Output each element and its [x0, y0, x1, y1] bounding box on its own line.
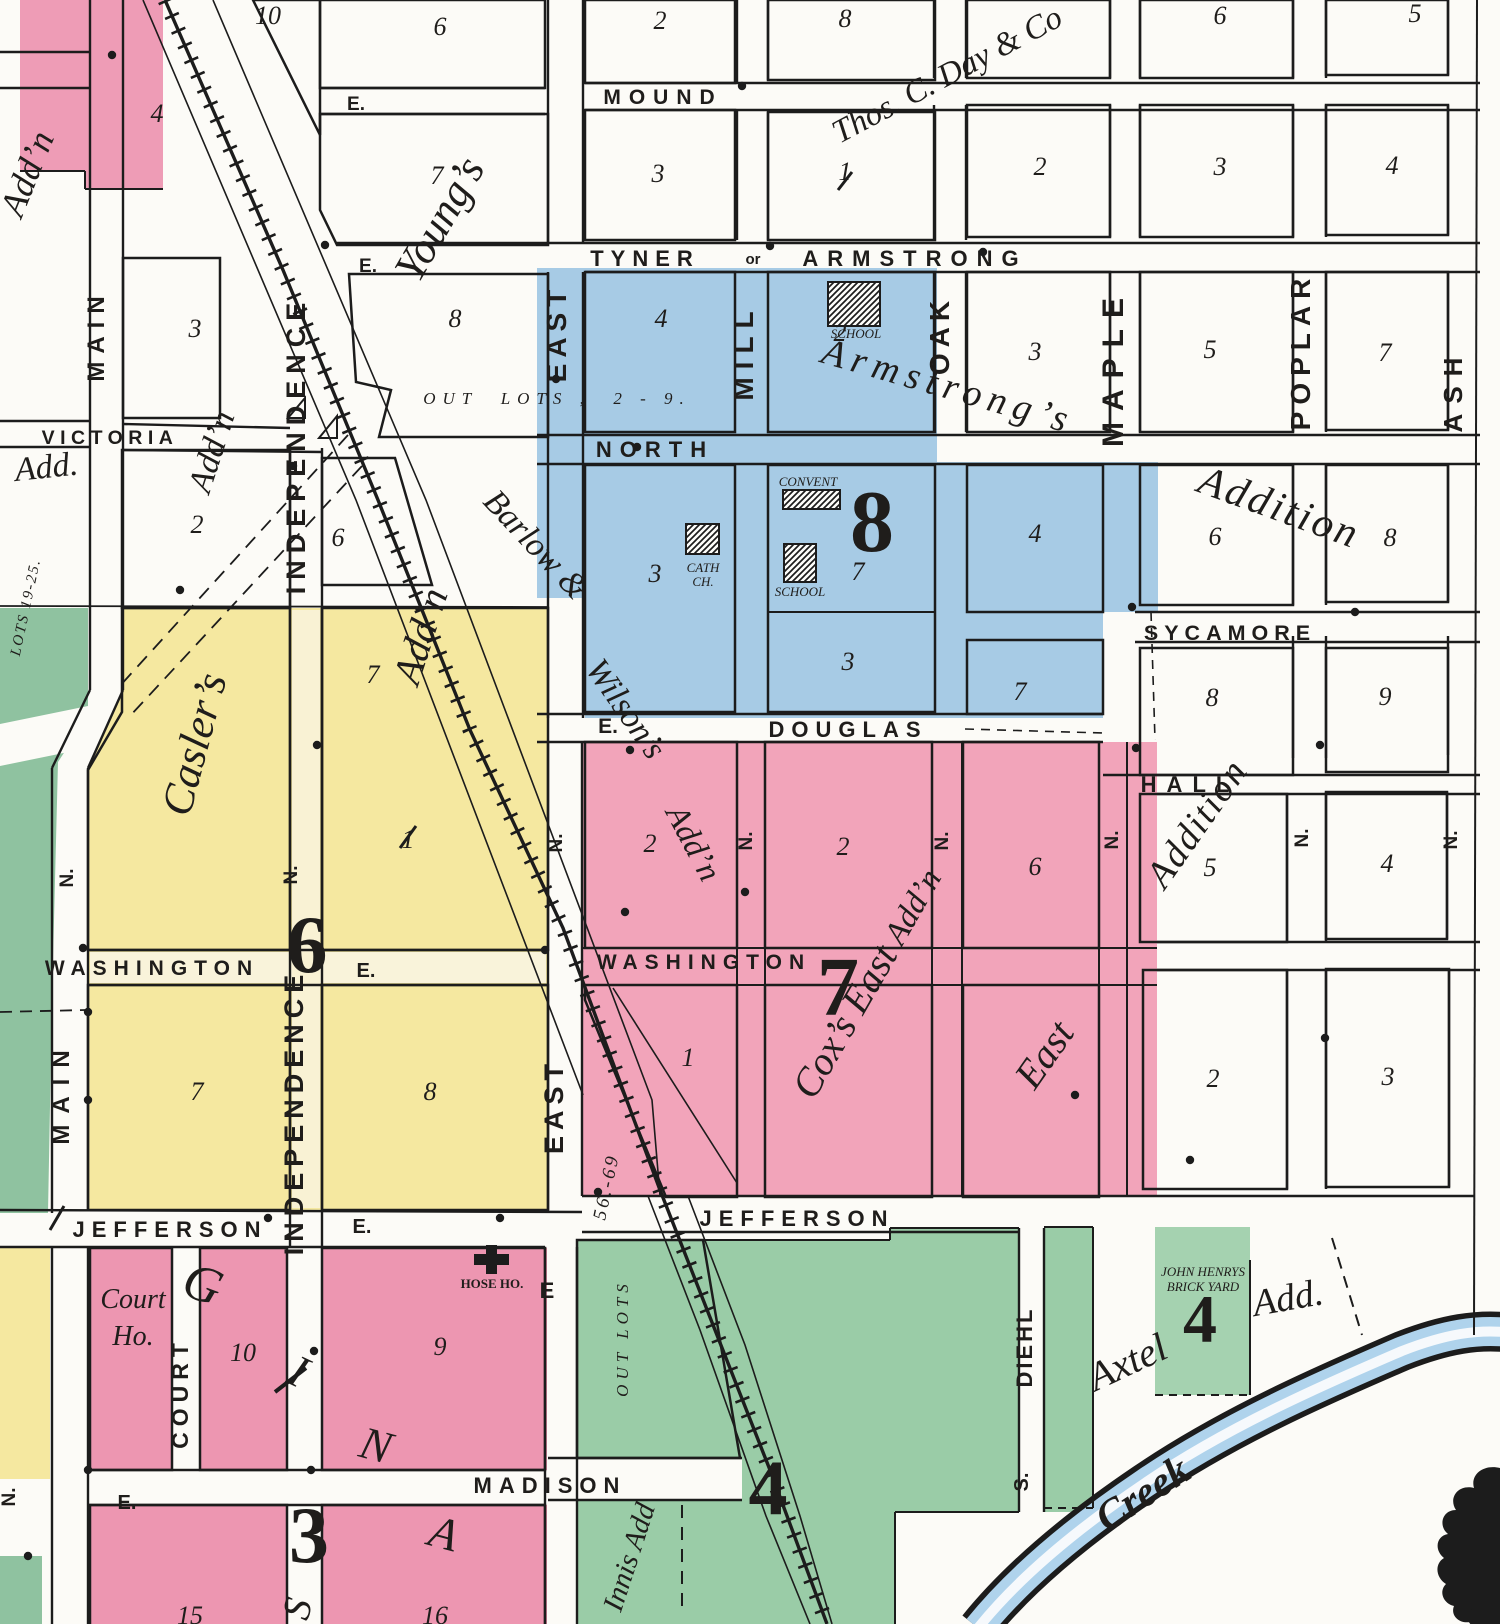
svg-text:3: 3: [1028, 337, 1042, 366]
svg-text:SCHOOL: SCHOOL: [775, 584, 826, 599]
svg-text:4: 4: [1381, 849, 1394, 878]
svg-text:VICTORIA: VICTORIA: [42, 427, 179, 449]
svg-text:8: 8: [1206, 683, 1219, 712]
svg-text:JOHN HENRYS: JOHN HENRYS: [1161, 1264, 1245, 1279]
svg-text:INDEPENDENCE: INDEPENDENCE: [279, 969, 309, 1256]
svg-text:5: 5: [1409, 0, 1422, 28]
svg-text:DIEHL: DIEHL: [1012, 1307, 1037, 1388]
svg-text:3: 3: [651, 159, 665, 188]
svg-text:4: 4: [151, 99, 164, 128]
svg-text:1: 1: [682, 1043, 695, 1072]
svg-text:10: 10: [230, 1338, 256, 1367]
svg-text:EAST: EAST: [541, 284, 572, 383]
svg-text:2: 2: [654, 6, 667, 35]
svg-text:CH.: CH.: [692, 574, 713, 589]
svg-text:MAIN: MAIN: [48, 1039, 75, 1144]
svg-text:3: 3: [188, 314, 202, 343]
svg-text:2: 2: [837, 832, 850, 861]
svg-text:POPLAR: POPLAR: [1285, 272, 1316, 431]
svg-text:16: 16: [422, 1601, 448, 1624]
svg-text:MAPLE: MAPLE: [1097, 287, 1130, 447]
svg-text:MADISON: MADISON: [474, 1473, 627, 1498]
svg-text:N.: N.: [0, 1488, 20, 1507]
svg-text:CATH: CATH: [687, 560, 720, 575]
svg-text:SYCAMORE: SYCAMORE: [1144, 621, 1316, 645]
svg-text:2: 2: [644, 829, 657, 858]
svg-text:ASH: ASH: [1438, 348, 1468, 433]
svg-text:6: 6: [287, 899, 328, 990]
svg-text:3: 3: [1213, 152, 1227, 181]
svg-text:N.: N.: [281, 866, 302, 885]
svg-text:4: 4: [1386, 151, 1399, 180]
svg-text:DOUGLAS: DOUGLAS: [769, 717, 928, 742]
svg-text:6: 6: [332, 523, 345, 552]
svg-text:INDEPENDENCE: INDEPENDENCE: [281, 296, 311, 595]
svg-text:4: 4: [1029, 519, 1042, 548]
svg-text:10: 10: [255, 1, 281, 30]
svg-text:Court: Court: [100, 1284, 167, 1315]
svg-text:2: 2: [191, 510, 204, 539]
svg-text:7: 7: [431, 161, 445, 190]
svg-text:or: or: [746, 251, 761, 268]
svg-text:N.: N.: [57, 869, 78, 888]
svg-text:7: 7: [367, 660, 381, 689]
svg-text:5: 5: [1204, 335, 1217, 364]
svg-text:OUT LOTS , 2 - 9.: OUT LOTS , 2 - 9.: [423, 389, 691, 408]
svg-text:2: 2: [1207, 1064, 1220, 1093]
svg-text:E.: E.: [118, 1492, 137, 1514]
svg-text:15: 15: [177, 1601, 203, 1624]
svg-text:WASHINGTON: WASHINGTON: [45, 957, 259, 980]
svg-text:7: 7: [1014, 677, 1028, 706]
svg-text:7: 7: [1379, 338, 1393, 367]
svg-text:JEFFERSON: JEFFERSON: [699, 1206, 894, 1231]
svg-text:COURT: COURT: [167, 1337, 193, 1449]
svg-text:OUT LOTS: OUT LOTS: [613, 1279, 632, 1397]
svg-text:6: 6: [1214, 1, 1227, 30]
svg-text:3: 3: [1381, 1062, 1395, 1091]
svg-text:3: 3: [648, 559, 662, 588]
svg-text:9: 9: [1379, 682, 1392, 711]
svg-text:6: 6: [1029, 852, 1042, 881]
svg-text:TYNER: TYNER: [590, 246, 700, 271]
svg-text:HOSE HO.: HOSE HO.: [461, 1276, 524, 1291]
svg-text:4: 4: [655, 304, 668, 333]
svg-text:JEFFERSON: JEFFERSON: [72, 1217, 267, 1242]
svg-text:WASHINGTON: WASHINGTON: [597, 951, 811, 974]
svg-text:8: 8: [424, 1077, 437, 1106]
svg-text:BRICK YARD: BRICK YARD: [1167, 1279, 1240, 1294]
svg-text:8: 8: [449, 304, 462, 333]
svg-text:N.: N.: [736, 832, 757, 851]
svg-text:3: 3: [841, 647, 855, 676]
svg-text:5: 5: [1204, 853, 1217, 882]
svg-text:9: 9: [434, 1332, 447, 1361]
svg-text:MAIN: MAIN: [83, 288, 110, 381]
svg-text:2: 2: [1034, 152, 1047, 181]
svg-text:E: E: [540, 1278, 555, 1303]
svg-text:N.: N.: [1441, 831, 1462, 850]
svg-text:N.: N.: [1292, 829, 1313, 848]
svg-text:8: 8: [839, 4, 852, 33]
svg-text:8: 8: [1384, 523, 1397, 552]
svg-text:7: 7: [191, 1077, 205, 1106]
svg-text:E.: E.: [359, 256, 377, 277]
svg-text:3: 3: [289, 1492, 329, 1580]
svg-text:N.: N.: [1102, 831, 1123, 850]
svg-text:EAST: EAST: [539, 1058, 569, 1154]
svg-text:8: 8: [850, 474, 894, 571]
svg-text:N.: N.: [932, 832, 953, 851]
svg-text:CONVENT: CONVENT: [779, 474, 838, 489]
svg-text:SCHOOL: SCHOOL: [831, 326, 882, 341]
svg-text:E.: E.: [353, 1216, 372, 1238]
svg-text:6: 6: [1209, 522, 1222, 551]
svg-text:MOUND: MOUND: [603, 86, 722, 109]
svg-text:NORTH: NORTH: [596, 437, 714, 462]
svg-text:6: 6: [434, 12, 447, 41]
svg-text:MILL: MILL: [728, 303, 759, 400]
svg-text:E.: E.: [357, 960, 376, 982]
svg-text:S.: S.: [1011, 1473, 1033, 1492]
svg-text:E.: E.: [347, 94, 365, 115]
svg-text:7: 7: [817, 941, 859, 1034]
svg-text:N.: N.: [546, 834, 567, 853]
svg-text:ARMSTRONG: ARMSTRONG: [802, 246, 1027, 271]
svg-text:Add.: Add.: [11, 446, 80, 490]
svg-text:4: 4: [749, 1444, 788, 1531]
svg-text:Ho.: Ho.: [111, 1321, 153, 1352]
